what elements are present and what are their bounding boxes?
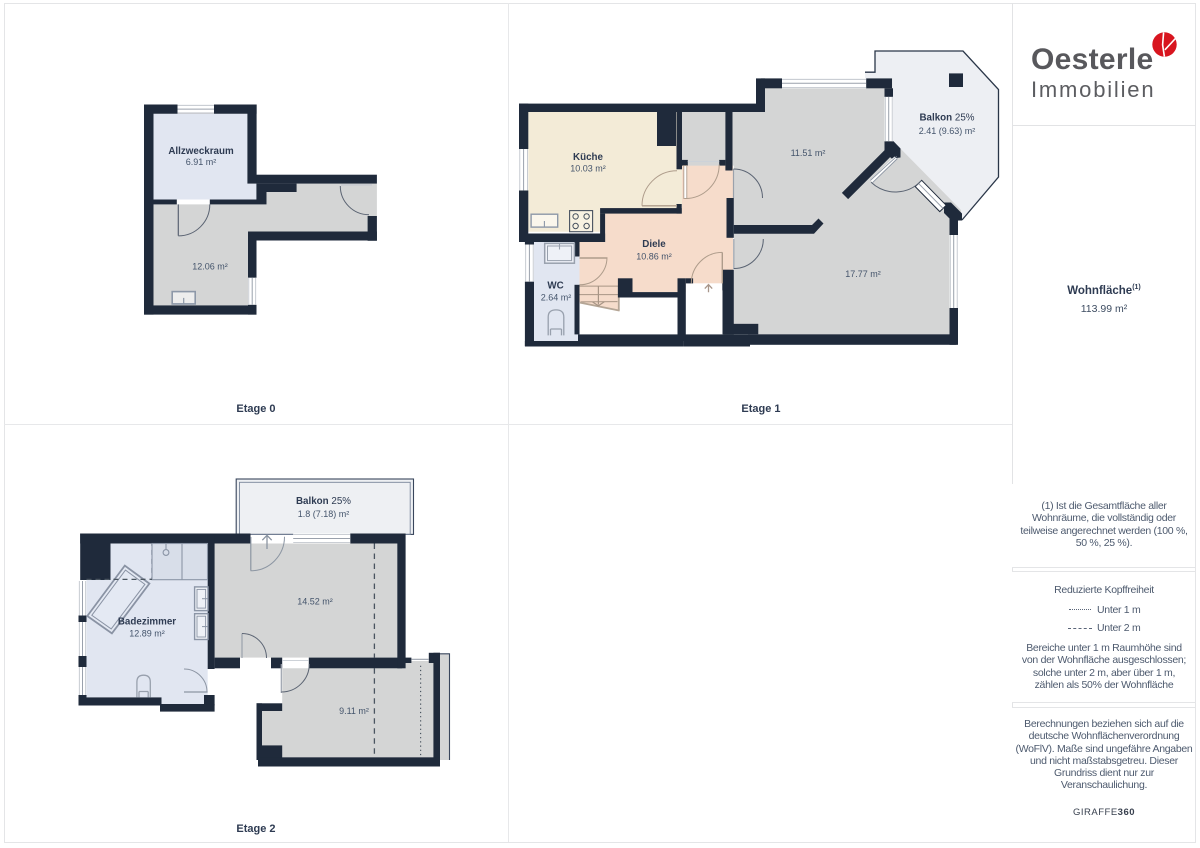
svg-text:2.41 (9.63) m²: 2.41 (9.63) m² — [919, 126, 976, 136]
svg-text:10.03 m²: 10.03 m² — [570, 164, 606, 174]
svg-text:1.8 (7.18) m²: 1.8 (7.18) m² — [298, 509, 350, 519]
svg-text:6.91 m²: 6.91 m² — [186, 157, 217, 167]
svg-text:12.06 m²: 12.06 m² — [192, 262, 228, 272]
svg-text:14.52 m²: 14.52 m² — [297, 597, 333, 607]
svg-text:Diele: Diele — [642, 239, 666, 250]
svg-text:11.51 m²: 11.51 m² — [791, 148, 826, 158]
svg-text:17.77 m²: 17.77 m² — [845, 269, 881, 279]
svg-text:Balkon 25%: Balkon 25% — [296, 496, 351, 507]
svg-text:WC: WC — [547, 281, 563, 292]
svg-text:2.64 m²: 2.64 m² — [541, 293, 572, 303]
svg-text:Küche: Küche — [573, 152, 603, 163]
svg-text:9.11 m²: 9.11 m² — [339, 706, 369, 716]
svg-text:12.89 m²: 12.89 m² — [129, 629, 165, 639]
svg-text:Allzweckraum: Allzweckraum — [168, 146, 234, 157]
svg-text:Balkon 25%: Balkon 25% — [919, 113, 974, 124]
svg-text:Badezimmer: Badezimmer — [118, 617, 176, 628]
svg-text:10.86 m²: 10.86 m² — [636, 252, 672, 262]
